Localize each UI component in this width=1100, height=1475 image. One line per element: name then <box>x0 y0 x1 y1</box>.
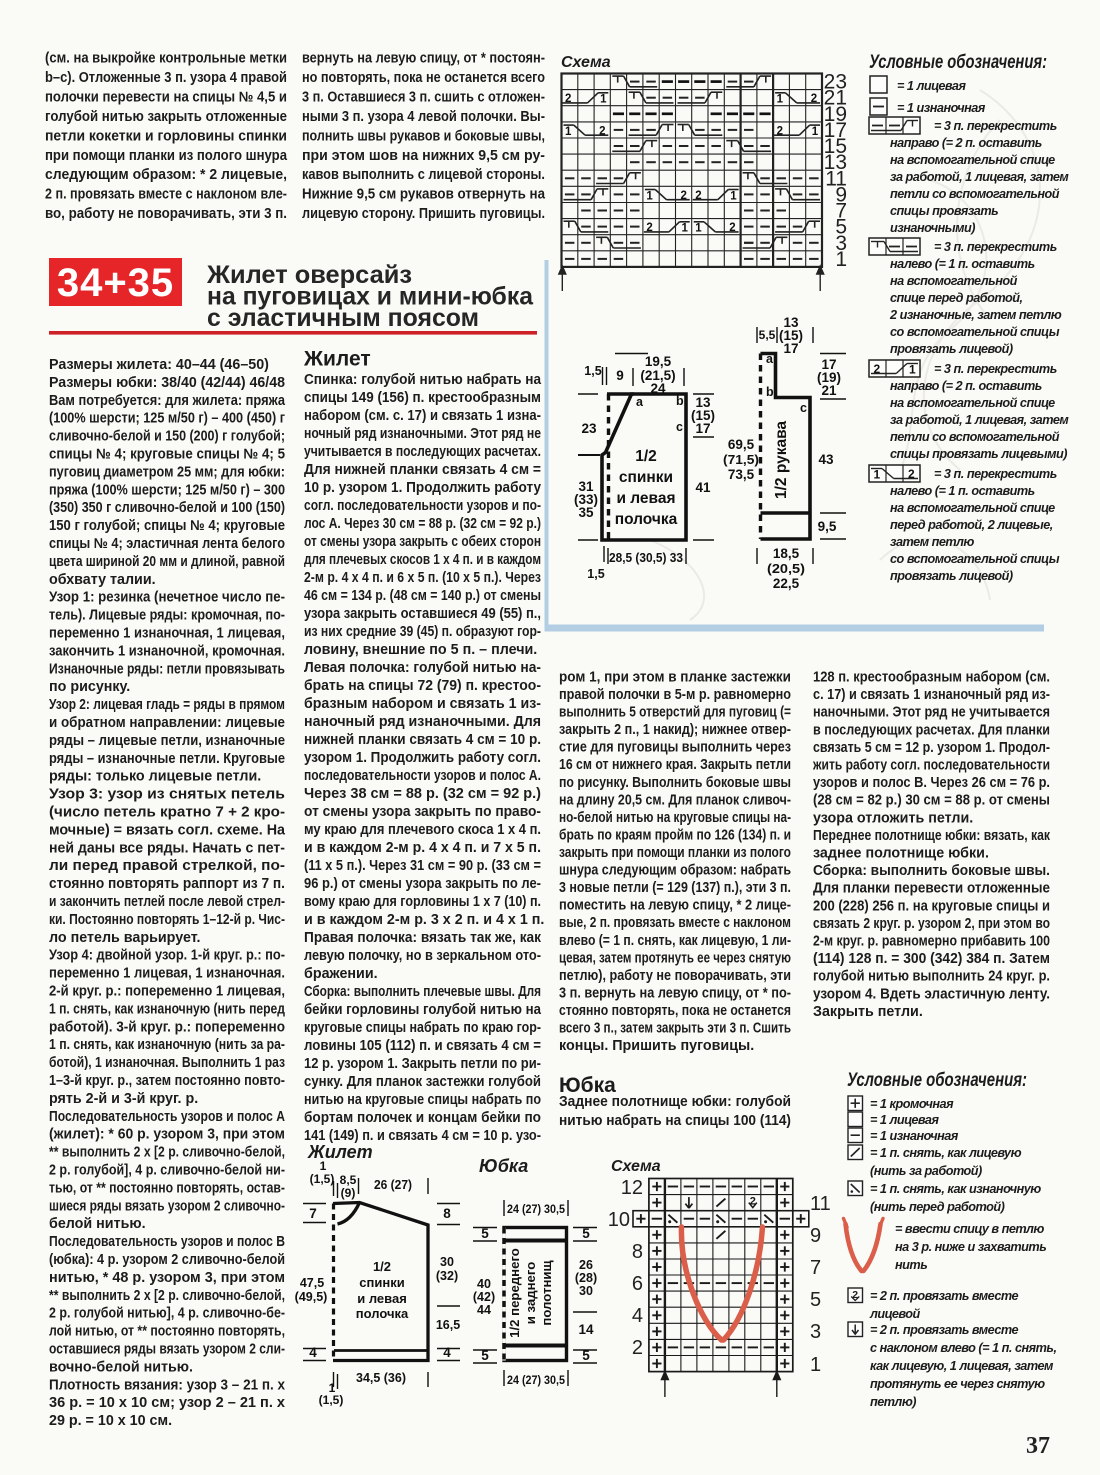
svg-text:тель). Лицевые ряды: кромочная: тель). Лицевые ряды: кромочная, по- <box>49 608 285 624</box>
svg-text:шиеся ряды вязать узором 2 сли: шиеся ряды вязать узором 2 сливочно- <box>49 1198 285 1214</box>
svg-text:цвета шириной 20 мм и длиной,: цвета шириной 20 мм и длиной, равной <box>49 554 285 570</box>
svg-text:как лицевую, 1 лицевая, затем: как лицевую, 1 лицевая, затем <box>870 1359 1054 1373</box>
svg-text:(нить перед работой): (нить перед работой) <box>870 1200 1005 1214</box>
svg-text:1/2 рукава: 1/2 рукава <box>773 421 790 499</box>
svg-text:22,5: 22,5 <box>773 576 800 591</box>
svg-text:оставшиеся ряды вязать узором: оставшиеся ряды вязать узором 2 сли- <box>49 1342 285 1358</box>
svg-text:28,5 (30,5) 33: 28,5 (30,5) 33 <box>609 551 683 565</box>
svg-text:43: 43 <box>818 452 834 467</box>
svg-text:круговые спицы набрать по краю: круговые спицы набрать по краю гор- <box>304 1020 541 1036</box>
svg-text:при помощи планки из полого шн: при помощи планки из полого шнура <box>45 148 288 164</box>
svg-text:7: 7 <box>309 1206 317 1221</box>
svg-text:и в каждом 2-м р. 4 х 4 п. и 7: и в каждом 2-м р. 4 х 4 п. и 7 х 5 п. <box>304 840 541 856</box>
svg-text:спинки: спинки <box>619 469 673 486</box>
svg-text:голубой нитью закрыть отложенн: голубой нитью закрыть отложенные <box>45 109 287 125</box>
svg-text:но-белой нитью на круговые спи: но-белой нитью на круговые спицы на- <box>559 810 791 826</box>
svg-text:узоров и полос В. Через 26 см: узоров и полос В. Через 26 см = 76 р. <box>813 775 1050 791</box>
svg-text:и заднего: и заднего <box>523 1262 538 1325</box>
svg-text:35: 35 <box>578 505 594 520</box>
svg-text:закрыть 2 п., 1 накид); нижнее: закрыть 2 п., 1 накид); нижнее отвер- <box>559 722 791 738</box>
svg-text:3 новые петли (= 129 (137) п.): 3 новые петли (= 129 (137) п.), эти 3 п. <box>559 880 791 896</box>
svg-text:5: 5 <box>481 1226 489 1241</box>
svg-text:b–c). Отложенные 3 п. узора 4: b–c). Отложенные 3 п. узора 4 правой <box>45 70 287 86</box>
svg-text:протянуть ее через снятую: протянуть ее через снятую <box>870 1377 1045 1391</box>
svg-text:Левая полочка: голубой нитью н: Левая полочка: голубой нитью на- <box>304 660 541 676</box>
svg-text:тью, от ** постоянно повторять: тью, от ** постоянно повторять, остав- <box>49 1180 285 1196</box>
svg-text:рять 2-й и 3-й круг. р.: рять 2-й и 3-й круг. р. <box>49 1091 198 1107</box>
svg-text:бортам полочек и концам бейки: бортам полочек и концам бейки по <box>304 1110 541 1126</box>
svg-text:стоянно повторять, пока не ост: стоянно повторять, пока не останется <box>559 1003 791 1019</box>
svg-text:2 р. голубой], 4 р. сливочно-б: 2 р. голубой], 4 р. сливочно-белой ни- <box>49 1163 285 1179</box>
svg-text:пряжа (100% шерсти; 125 м/50 г: пряжа (100% шерсти; 125 м/50 г) – 300 <box>49 482 285 498</box>
svg-text:и обратном направлении: лицевы: и обратном направлении: лицевые <box>49 715 285 731</box>
svg-text:концы. Пришить пуговицы.: концы. Пришить пуговицы. <box>559 1038 754 1054</box>
svg-text:(см. на выкройке контрольные м: (см. на выкройке контрольные метки <box>45 51 287 67</box>
svg-text:петли кокетки и горловины спин: петли кокетки и горловины спинки <box>45 128 287 144</box>
svg-text:по рисунку.: по рисунку. <box>49 679 130 695</box>
svg-text:учитывается в последующих расч: учитывается в последующих расчетах. <box>304 444 541 460</box>
svg-text:16 см от нижнего края. Закрыть: 16 см от нижнего края. Закрыть петли <box>559 757 791 773</box>
svg-text:37: 37 <box>1026 1433 1050 1459</box>
svg-text:кавов выполнить с лицевой стор: кавов выполнить с лицевой стороны. <box>302 167 545 183</box>
svg-text:9: 9 <box>810 1225 821 1247</box>
svg-text:с наклоном влево (= 1 п. снять: с наклоном влево (= 1 п. снять, <box>870 1341 1056 1355</box>
svg-text:вочно-белой нитью.: вочно-белой нитью. <box>49 1359 193 1375</box>
svg-text:a: a <box>766 352 774 366</box>
svg-text:полотнищ: полотнищ <box>539 1260 554 1325</box>
svg-text:(жилет): * 60 р. узором 3, при: (жилет): * 60 р. узором 3, при этом <box>49 1127 285 1143</box>
svg-text:мочные) = вязать согл. схеме.: мочные) = вязать согл. схеме. На <box>49 822 286 838</box>
svg-text:9: 9 <box>616 368 624 383</box>
svg-text:= 2 п. провязать вместе: = 2 п. провязать вместе <box>870 1289 1019 1303</box>
svg-text:= ввести спицу в петлю: = ввести спицу в петлю <box>895 1222 1044 1236</box>
svg-text:1: 1 <box>812 126 819 138</box>
svg-text:переменно 1 лицевая, 1 изнаноч: переменно 1 лицевая, 1 изнаночная. <box>49 966 285 982</box>
svg-text:5: 5 <box>582 1348 590 1363</box>
svg-text:11: 11 <box>810 1193 831 1215</box>
svg-text:1: 1 <box>682 223 689 235</box>
svg-text:нитью, * 48 р. узором 3, при э: нитью, * 48 р. узором 3, при этом <box>49 1270 285 1286</box>
svg-text:Спинка: голубой нитью набрать: Спинка: голубой нитью набрать на <box>304 372 542 388</box>
svg-text:= 3 п. перекрестить: = 3 п. перекрестить <box>934 362 1057 376</box>
svg-text:10 р. узором 1. Продолжить раб: 10 р. узором 1. Продолжить работу <box>304 480 541 496</box>
svg-text:со вспомогательной спицы: со вспомогательной спицы <box>890 325 1060 339</box>
svg-text:73,5: 73,5 <box>728 467 755 482</box>
svg-text:при этом шов на нижних 9,5 см: при этом шов на нижних 9,5 см ру- <box>302 148 545 164</box>
svg-text:и левая: и левая <box>357 1291 407 1306</box>
svg-text:Условные обозначения:: Условные обозначения: <box>847 1069 1027 1091</box>
svg-text:(350) 350 г сливочно-белой и 1: (350) 350 г сливочно-белой и 100 (150) <box>49 500 285 516</box>
svg-text:бейки горловины голубой нитью: бейки горловины голубой нитью на <box>304 1002 542 1018</box>
svg-text:спицы провязать: спицы провязать <box>890 204 998 218</box>
svg-text:2 п. провязать вместе с наклон: 2 п. провязать вместе с наклоном вле- <box>45 187 287 203</box>
svg-text:b: b <box>766 385 774 399</box>
svg-text:спицы провязать лицевыми): спицы провязать лицевыми) <box>890 447 1067 461</box>
svg-text:ночный ряд изнаночными. Этот р: ночный ряд изнаночными. Этот ряд не <box>304 426 541 442</box>
svg-text:Узор 1: резинка (нечетное числ: Узор 1: резинка (нечетное число пе- <box>49 590 285 606</box>
svg-text:4: 4 <box>309 1345 317 1360</box>
svg-text:ром 1, при этом в планке засте: ром 1, при этом в планке застежки <box>559 670 791 686</box>
svg-text:ло петель варьирует.: ло петель варьирует. <box>49 930 200 946</box>
svg-text:Размеры юбки: 38/40 (42/44) 46: Размеры юбки: 38/40 (42/44) 46/48 <box>49 375 285 391</box>
svg-text:закончить 1 изнаночной, кромоч: закончить 1 изнаночной, кромочная. <box>49 643 285 659</box>
svg-text:на вспомогательной спице: на вспомогательной спице <box>890 153 1055 167</box>
svg-text:2 изнаночные, затем петлю: 2 изнаночные, затем петлю <box>889 308 1062 322</box>
svg-text:за работой, 1 лицевая, затем: за работой, 1 лицевая, затем <box>890 170 1069 184</box>
svg-text:4: 4 <box>632 1305 643 1327</box>
svg-text:в последующих расчетах. Для пл: в последующих расчетах. Для планки <box>813 722 1050 738</box>
svg-text:c: c <box>676 420 683 434</box>
svg-text:Юбка: Юбка <box>479 1156 528 1176</box>
svg-text:провязать лицевой): провязать лицевой) <box>890 569 1013 583</box>
svg-text:24 (27) 30,5: 24 (27) 30,5 <box>507 1373 565 1387</box>
svg-text:200 (228) 256 п. на круговые с: 200 (228) 256 п. на круговые спицы и <box>813 898 1050 914</box>
svg-text:44: 44 <box>477 1303 491 1317</box>
svg-text:от смены узора закрыть с обеих: от смены узора закрыть с обеих сторон <box>304 534 541 550</box>
svg-text:бразным набором и связать 1 из: бразным набором и связать 1 из- <box>304 696 541 712</box>
svg-text:17: 17 <box>783 341 798 356</box>
svg-text:1–3-й круг. р., затем постоянн: 1–3-й круг. р., затем постоянно повто- <box>49 1073 285 1089</box>
svg-text:(1,5): (1,5) <box>310 1172 335 1186</box>
svg-text:лой нитью, от ** постоянно пов: лой нитью, от ** постоянно повторять, <box>49 1324 285 1340</box>
svg-text:переменно 1 изнаночная, 1 лице: переменно 1 изнаночная, 1 лицевая, <box>49 626 285 642</box>
svg-text:цевая, затем протянуть ее чере: цевая, затем протянуть ее через снятую <box>559 950 791 966</box>
svg-text:30: 30 <box>579 1284 593 1298</box>
svg-text:2-м круг. р. равномерно прибав: 2-м круг. р. равномерно прибавить 100 <box>813 934 1050 950</box>
svg-text:петли со вспомогательной: петли со вспомогательной <box>890 187 1060 201</box>
svg-text:для плечевых скосов 1 х 4 п. и: для плечевых скосов 1 х 4 п. и в каждом <box>304 552 541 568</box>
svg-text:= 1 изнаночная: = 1 изнаночная <box>897 101 986 115</box>
svg-text:5,5: 5,5 <box>759 328 776 342</box>
svg-text:брать по краям пройм по 126 (1: брать по краям пройм по 126 (134) п. и <box>559 828 791 844</box>
svg-text:Последовательность узоров и по: Последовательность узоров и полос А <box>49 1109 285 1125</box>
svg-text:ными 3 п. узора 4 левой полочк: ными 3 п. узора 4 левой полочки. Вы- <box>302 109 545 125</box>
svg-text:петлю): петлю) <box>870 1395 916 1409</box>
svg-text:полнить швы рукавов и боковые: полнить швы рукавов и боковые швы, <box>302 128 545 144</box>
svg-text:Последовательность узоров и по: Последовательность узоров и полос В <box>49 1234 285 1250</box>
svg-text:вые, 2 п. провязать вместе с н: вые, 2 п. провязать вместе с наклоном <box>559 915 791 931</box>
svg-text:12: 12 <box>621 1177 643 1199</box>
svg-text:2-м р. 4 х 4 п. и 6 х 5 п. (10: 2-м р. 4 х 4 п. и 6 х 5 п. (10 х 5 п.). … <box>304 570 541 586</box>
svg-text:(28 см = 82 р.) 30 см = 88 р.: (28 см = 82 р.) 30 см = 88 р. от смены <box>813 793 1050 809</box>
svg-text:1: 1 <box>810 1354 821 1376</box>
svg-text:34+35: 34+35 <box>57 261 174 305</box>
svg-text:= 2 п. провязать вместе: = 2 п. провязать вместе <box>870 1323 1019 1337</box>
svg-text:1 п. снять, как изнаночную (ни: 1 п. снять, как изнаночную (нить за ра- <box>49 1037 285 1053</box>
svg-text:96 р.) от смены узора закрыть: 96 р.) от смены узора закрыть по ле- <box>304 876 541 892</box>
svg-text:заднее полотнище юбки.: заднее полотнище юбки. <box>813 846 989 862</box>
svg-text:2: 2 <box>729 222 735 234</box>
svg-text:(число петель кратно 7 + 2 кро: (число петель кратно 7 + 2 кро- <box>49 805 285 821</box>
svg-text:Плотность вязания: узор 3 – 21: Плотность вязания: узор 3 – 21 п. х <box>49 1377 285 1393</box>
svg-text:Условные обозначения:: Условные обозначения: <box>869 51 1047 73</box>
svg-text:6: 6 <box>632 1273 643 1295</box>
svg-text:спинки: спинки <box>359 1275 404 1290</box>
svg-text:1/2: 1/2 <box>635 448 657 465</box>
svg-text:Правая полочка: вязать так же,: Правая полочка: вязать так же, как <box>304 930 542 946</box>
svg-text:(28): (28) <box>575 1271 597 1285</box>
svg-text:9,5: 9,5 <box>818 519 837 534</box>
svg-text:во, работу не поворачивать, эт: во, работу не поворачивать, эти 3 п. <box>45 206 287 222</box>
svg-text:но повторять, пока не останетс: но повторять, пока не останется всего <box>302 70 545 86</box>
svg-text:** выполнить 2 х [2 р. сливочн: ** выполнить 2 х [2 р. сливочно-белой, <box>49 1288 285 1304</box>
svg-text:со вспомогательной спицы: со вспомогательной спицы <box>890 552 1060 566</box>
svg-text:(1,5): (1,5) <box>319 1393 344 1407</box>
svg-text:17: 17 <box>695 421 710 436</box>
svg-text:спицы № 4; эластичная лента бе: спицы № 4; эластичная лента белого <box>49 536 285 552</box>
svg-text:24: 24 <box>650 381 666 396</box>
svg-text:набором (см. с. 17) и связать: набором (см. с. 17) и связать 1 изна- <box>304 408 541 424</box>
svg-text:лос А. Через 30 см = 88 р. (32: лос А. Через 30 см = 88 р. (32 см = 92 р… <box>304 516 541 532</box>
svg-text:(100% шерсти; 125 м/50 г) – 40: (100% шерсти; 125 м/50 г) – 400 (450) г <box>49 411 285 427</box>
svg-text:34,5 (36): 34,5 (36) <box>356 1370 406 1385</box>
svg-text:согл. последовательности узоро: согл. последовательности узоров и по- <box>304 498 541 514</box>
svg-text:1/2: 1/2 <box>373 1259 391 1274</box>
svg-text:направо (= 2 п. оставить: направо (= 2 п. оставить <box>890 379 1042 393</box>
svg-text:закрыть при помощи планки из п: закрыть при помощи планки из полого <box>559 845 791 861</box>
svg-text:вому краю для горловины 1 х 7: вому краю для горловины 1 х 7 (10) п. <box>304 894 541 910</box>
svg-text:a: a <box>636 395 644 409</box>
svg-text:спице перед работой,: спице перед работой, <box>890 291 1023 305</box>
svg-text:2: 2 <box>908 467 915 481</box>
svg-text:1: 1 <box>600 94 607 106</box>
svg-text:сунку. Для планок застежки гол: сунку. Для планок застежки голубой <box>304 1074 541 1090</box>
svg-text:(20,5): (20,5) <box>767 561 805 576</box>
svg-text:затем петлю: затем петлю <box>890 535 974 549</box>
svg-text:1: 1 <box>565 126 572 138</box>
svg-text:Вам потребуется: для жилета: п: Вам потребуется: для жилета: пряжа <box>49 393 286 409</box>
svg-text:Сборка: выполнить боковые швы.: Сборка: выполнить боковые швы. <box>813 863 1050 879</box>
svg-text:7: 7 <box>810 1257 821 1279</box>
svg-text:(11 х 5 п.). Через 31 см = 90: (11 х 5 п.). Через 31 см = 90 р. (33 см … <box>304 858 541 874</box>
svg-text:Для планки перевести отложенны: Для планки перевести отложенные <box>813 881 1050 897</box>
svg-text:узора отложить петли.: узора отложить петли. <box>813 810 973 826</box>
svg-text:= 3 п. перекрестить: = 3 п. перекрестить <box>934 119 1057 133</box>
svg-text:2: 2 <box>681 190 687 202</box>
svg-text:ней даны все ряды. Начать с пе: ней даны все ряды. Начать с пет- <box>49 840 285 856</box>
svg-text:41: 41 <box>695 480 711 495</box>
svg-text:3: 3 <box>810 1321 821 1343</box>
svg-text:полочка: полочка <box>615 511 678 528</box>
svg-text:из них средние 39 (45) п. обра: из них средние 39 (45) п. образуют гор- <box>304 624 541 640</box>
svg-text:5: 5 <box>810 1289 821 1311</box>
svg-text:стие для пуговицы выполнить че: стие для пуговицы выполнить через <box>559 740 791 756</box>
svg-text:лицевой: лицевой <box>869 1307 921 1321</box>
svg-text:2: 2 <box>599 125 605 137</box>
svg-text:(32): (32) <box>436 1269 458 1283</box>
svg-text:= 3 п. перекрестить: = 3 п. перекрестить <box>934 240 1057 254</box>
svg-text:на вспомогательной спице: на вспомогательной спице <box>890 396 1055 410</box>
svg-text:Схема: Схема <box>561 54 611 71</box>
svg-text:16,5: 16,5 <box>436 1318 460 1332</box>
svg-text:наночный ряд изнаночными. Для: наночный ряд изнаночными. Для <box>304 714 541 730</box>
svg-text:1: 1 <box>646 190 653 202</box>
svg-text:** выполнить 2 х [2 р. сливочн: ** выполнить 2 х [2 р. сливочно-белой, <box>49 1145 285 1161</box>
svg-text:10: 10 <box>608 1209 630 1231</box>
svg-text:узора закрыть оставшиеся 49 (5: узора закрыть оставшиеся 49 (55) п., <box>304 606 541 622</box>
svg-text:бражении.: бражении. <box>304 966 378 982</box>
svg-text:(9): (9) <box>341 1186 356 1200</box>
svg-text:Заднее полотнище юбки: голубой: Заднее полотнище юбки: голубой <box>559 1094 791 1110</box>
svg-text:петлю), работу не поворачивать: петлю), работу не поворачивать, эти <box>559 968 791 984</box>
svg-text:1: 1 <box>874 468 881 482</box>
svg-text:5: 5 <box>582 1226 590 1241</box>
svg-text:Узор 3: узор из снятых петель: Узор 3: узор из снятых петель <box>49 787 285 803</box>
svg-text:за работой, 1 лицевая, затем: за работой, 1 лицевая, затем <box>890 413 1069 427</box>
svg-text:36 р. = 10 х 10 см; узор 2 – 2: 36 р. = 10 х 10 см; узор 2 – 21 п. х <box>49 1395 285 1411</box>
svg-text:и левая: и левая <box>616 490 675 507</box>
svg-text:ли перед правой стрелкой, по-: ли перед правой стрелкой, по- <box>49 858 285 874</box>
svg-text:налево (= 1 п. оставить: налево (= 1 п. оставить <box>890 484 1035 498</box>
svg-text:ки. Постоянно повторять 1–12-й: ки. Постоянно повторять 1–12-й р. Чис- <box>49 912 285 928</box>
svg-text:следующим образом: * 2 лицевые: следующим образом: * 2 лицевые, <box>45 167 287 183</box>
svg-text:последовательности узоров и по: последовательности узоров и полос А. <box>304 768 541 784</box>
svg-text:спицы 149 (156) п. крестообраз: спицы 149 (156) п. крестообразным <box>304 390 541 406</box>
svg-text:(нить за работой): (нить за работой) <box>870 1164 982 1178</box>
svg-text:ряды: только лицевые петли.: ряды: только лицевые петли. <box>49 769 261 785</box>
svg-text:на длину 20,5 см. Для планок с: на длину 20,5 см. Для планок сливоч- <box>559 792 791 808</box>
svg-text:1: 1 <box>320 1159 327 1173</box>
svg-text:Изнаночные ряды: петли провязы: Изнаночные ряды: петли провязывать <box>49 661 285 677</box>
svg-text:1,5: 1,5 <box>587 567 604 581</box>
svg-text:поместить на левую спицу, * 2: поместить на левую спицу, * 2 лице- <box>559 898 791 914</box>
svg-text:(71,5): (71,5) <box>723 452 759 467</box>
svg-text:полочка: полочка <box>356 1306 409 1321</box>
svg-text:Схема: Схема <box>611 1158 661 1175</box>
svg-text:ботой), 1 изнаночная. Выполнит: ботой), 1 изнаночная. Выполнить 1 раз <box>49 1055 285 1071</box>
svg-text:шнура следующим образом: набра: шнура следующим образом: набрать <box>559 863 791 879</box>
svg-text:спицы № 4; круговые спицы № 4;: спицы № 4; круговые спицы № 4; 5 <box>49 447 285 463</box>
svg-text:Жилет: Жилет <box>307 1142 373 1162</box>
svg-text:Через 38 см = 88 р. (32 см = 9: Через 38 см = 88 р. (32 см = 92 р.) <box>304 786 541 802</box>
svg-text:1: 1 <box>909 363 916 377</box>
svg-text:= 1 лицевая: = 1 лицевая <box>897 79 966 93</box>
svg-text:Для нижней планки связать 4 см: Для нижней планки связать 4 см = <box>304 462 541 478</box>
svg-text:18,5: 18,5 <box>773 546 800 561</box>
svg-text:вернуть на левую спицу, от * п: вернуть на левую спицу, от * постоян- <box>302 51 545 67</box>
svg-text:14: 14 <box>578 1322 594 1337</box>
svg-text:1: 1 <box>695 223 702 235</box>
svg-text:выполнить 5 отверстий для пуго: выполнить 5 отверстий для пуговиц (= <box>559 705 791 721</box>
svg-text:= 1 п. снять, как изнаночную: = 1 п. снять, как изнаночную <box>870 1182 1041 1196</box>
svg-text:стоянно повторять раппорт из 7: стоянно повторять раппорт из 7 п. <box>49 876 285 892</box>
svg-text:26 (27): 26 (27) <box>374 1177 412 1192</box>
svg-text:1: 1 <box>777 94 784 106</box>
svg-text:8: 8 <box>443 1206 451 1221</box>
svg-text:Нижние 9,5 см рукавов отвернут: Нижние 9,5 см рукавов отвернуть на <box>302 187 546 203</box>
svg-text:петли со вспомогательной: петли со вспомогательной <box>890 430 1060 444</box>
svg-text:47,5: 47,5 <box>300 1276 324 1290</box>
svg-text:и закончить петлей после левой: и закончить петлей после левой стрел- <box>49 894 285 910</box>
svg-text:5: 5 <box>481 1348 489 1363</box>
svg-text:работой). 3-й круг. р.: попере: работой). 3-й круг. р.: попеременно <box>49 1019 285 1035</box>
svg-text:Закрыть петли.: Закрыть петли. <box>813 1004 923 1020</box>
svg-text:обхвату талии.: обхвату талии. <box>49 572 156 588</box>
svg-text:на вспомогательной спице: на вспомогательной спице <box>890 501 1055 515</box>
svg-text:на вспомогательной: на вспомогательной <box>890 274 1018 288</box>
svg-text:полочки перевести на спицы № 4: полочки перевести на спицы № 4,5 и <box>45 89 287 105</box>
svg-text:правой полочки в 5-м р. равном: правой полочки в 5-м р. равномерно <box>559 687 791 703</box>
svg-text:2: 2 <box>811 93 817 105</box>
svg-text:69,5: 69,5 <box>728 437 755 452</box>
svg-text:8: 8 <box>632 1241 643 1263</box>
svg-text:46 см = 134 р. (48 см = 140 р.: 46 см = 134 р. (48 см = 140 р.) от смены <box>304 588 541 604</box>
svg-text:19,5: 19,5 <box>645 354 672 369</box>
svg-text:4: 4 <box>443 1345 451 1360</box>
svg-text:= 1 кромочная: = 1 кромочная <box>870 1097 954 1111</box>
svg-text:= 1 изнаночная: = 1 изнаночная <box>870 1129 959 1143</box>
svg-text:1: 1 <box>835 248 847 271</box>
svg-text:узором 4. Вдеть эластичную лен: узором 4. Вдеть эластичную ленту. <box>813 986 1050 1002</box>
svg-text:Размеры жилета: 40–44 (46–50): Размеры жилета: 40–44 (46–50) <box>49 357 269 373</box>
svg-text:и в каждом 2-м р. 3 х 2 п. и 4: и в каждом 2-м р. 3 х 2 п. и 4 х 1 п. <box>304 912 544 928</box>
svg-text:= 1 лицевая: = 1 лицевая <box>870 1113 939 1127</box>
svg-text:нижней планки связать 4 см = 1: нижней планки связать 4 см = 10 р. <box>304 732 541 748</box>
svg-text:(114) 128 п. = 300 (342) 384 п: (114) 128 п. = 300 (342) 384 п. Затем <box>813 951 1050 967</box>
svg-text:40: 40 <box>477 1277 491 1291</box>
svg-text:направо (= 2 п. оставить: направо (= 2 п. оставить <box>890 136 1042 150</box>
svg-text:белой нитью.: белой нитью. <box>49 1216 146 1232</box>
svg-text:изнаночными): изнаночными) <box>890 221 975 235</box>
svg-text:= 3 п. перекрестить: = 3 п. перекрестить <box>934 467 1057 481</box>
svg-text:перед работой, 2 лицевые,: перед работой, 2 лицевые, <box>890 518 1053 532</box>
svg-text:(42): (42) <box>473 1290 495 1304</box>
svg-text:с эластичным поясом: с эластичным поясом <box>207 304 479 332</box>
svg-text:ряды – лицевые петли, изнаночн: ряды – лицевые петли, изнаночные <box>49 733 285 749</box>
svg-text:всего 3 п., затем закрыть эти: всего 3 п., затем закрыть эти 3 п. Сшить <box>559 1021 791 1037</box>
svg-text:от смены узора закрыть по прав: от смены узора закрыть по право- <box>304 804 541 820</box>
svg-text:Жилет: Жилет <box>303 348 371 371</box>
svg-text:связать 2 круг. р. узором 2, п: связать 2 круг. р. узором 2, при этом во <box>813 916 1050 932</box>
svg-text:29 р. = 10 х 10 см.: 29 р. = 10 х 10 см. <box>49 1413 172 1429</box>
svg-text:2 р. голубой нитью], 4 р. слив: 2 р. голубой нитью], 4 р. сливочно-бе- <box>49 1306 285 1322</box>
svg-text:нитью на круговые спицы набрат: нитью на круговые спицы набрать по <box>304 1092 541 1108</box>
svg-text:8,5: 8,5 <box>340 1173 357 1187</box>
svg-text:провязать лицевой): провязать лицевой) <box>890 342 1013 356</box>
svg-text:пуговиц диаметром 25 мм; для ю: пуговиц диаметром 25 мм; для юбки: <box>49 464 285 480</box>
svg-text:21: 21 <box>821 383 837 398</box>
svg-text:24 (27) 30,5: 24 (27) 30,5 <box>507 1202 565 1216</box>
svg-text:12 р. узором 1. Закрыть петли: 12 р. узором 1. Закрыть петли по ри- <box>304 1056 541 1072</box>
svg-text:узором 1. Продолжить работу со: узором 1. Продолжить работу согл. <box>304 750 541 766</box>
svg-text:связать 5 см = 12 р. узором 1.: связать 5 см = 12 р. узором 1. Продол- <box>813 740 1050 756</box>
svg-text:по рисунку. Выполнить боковые: по рисунку. Выполнить боковые швы <box>559 775 791 791</box>
svg-text:ловину, внешние по 5 п. – плеч: ловину, внешние по 5 п. – плечи. <box>304 642 537 658</box>
svg-text:1/2 переднего: 1/2 переднего <box>507 1248 522 1338</box>
svg-text:Переднее полотнище юбки: вязат: Переднее полотнище юбки: вязать, как <box>813 828 1051 844</box>
svg-text:с. 17) и связать 1 изнаночный: с. 17) и связать 1 изнаночный ряд из- <box>813 687 1050 703</box>
svg-text:сливочно-белой и 150 (200) г г: сливочно-белой и 150 (200) г голубой; <box>49 429 285 445</box>
svg-text:= 1 п. снять, как лицевую: = 1 п. снять, как лицевую <box>870 1146 1022 1160</box>
svg-text:150 г голубой; спицы № 4; круг: 150 г голубой; спицы № 4; круговые <box>49 518 285 534</box>
svg-text:26: 26 <box>579 1258 593 1272</box>
svg-text:жить работу согл. последовател: жить работу согл. последовательности <box>812 758 1050 774</box>
svg-text:(юбка): 4 р. узором 2 сливочно: (юбка): 4 р. узором 2 сливочно-белой <box>49 1252 285 1268</box>
svg-text:Узор 4: двойной узор. 1-й круг: Узор 4: двойной узор. 1-й круг. р.: по- <box>49 948 285 964</box>
svg-text:влево (= 1 п. снять, как лицев: влево (= 1 п. снять, как лицевую, 1 ли- <box>559 933 791 949</box>
svg-text:ряды – изнаночные петли. Круго: ряды – изнаночные петли. Круговые <box>49 751 285 767</box>
svg-text:2-й круг. р.: попеременно 1 ли: 2-й круг. р.: попеременно 1 лицевая, <box>49 984 285 1000</box>
svg-text:нитью набрать на спицы 100 (11: нитью набрать на спицы 100 (114) <box>559 1113 791 1129</box>
svg-text:2: 2 <box>632 1337 643 1359</box>
svg-text:му краю для плечевого скоса 1: му краю для плечевого скоса 1 х 4 п. <box>304 822 541 838</box>
svg-text:голубой нитью выполнить 24 кру: голубой нитью выполнить 24 круг. р. <box>813 969 1050 985</box>
svg-text:1,5: 1,5 <box>584 364 601 378</box>
svg-text:128 п. крестообразным набором: 128 п. крестообразным набором (см. <box>813 670 1050 686</box>
svg-text:c: c <box>800 401 807 415</box>
svg-text:на 3 р. ниже и захватить: на 3 р. ниже и захватить <box>895 1240 1046 1254</box>
svg-text:3 п. вернуть на левую спицу, о: 3 п. вернуть на левую спицу, от * по- <box>559 985 791 1001</box>
